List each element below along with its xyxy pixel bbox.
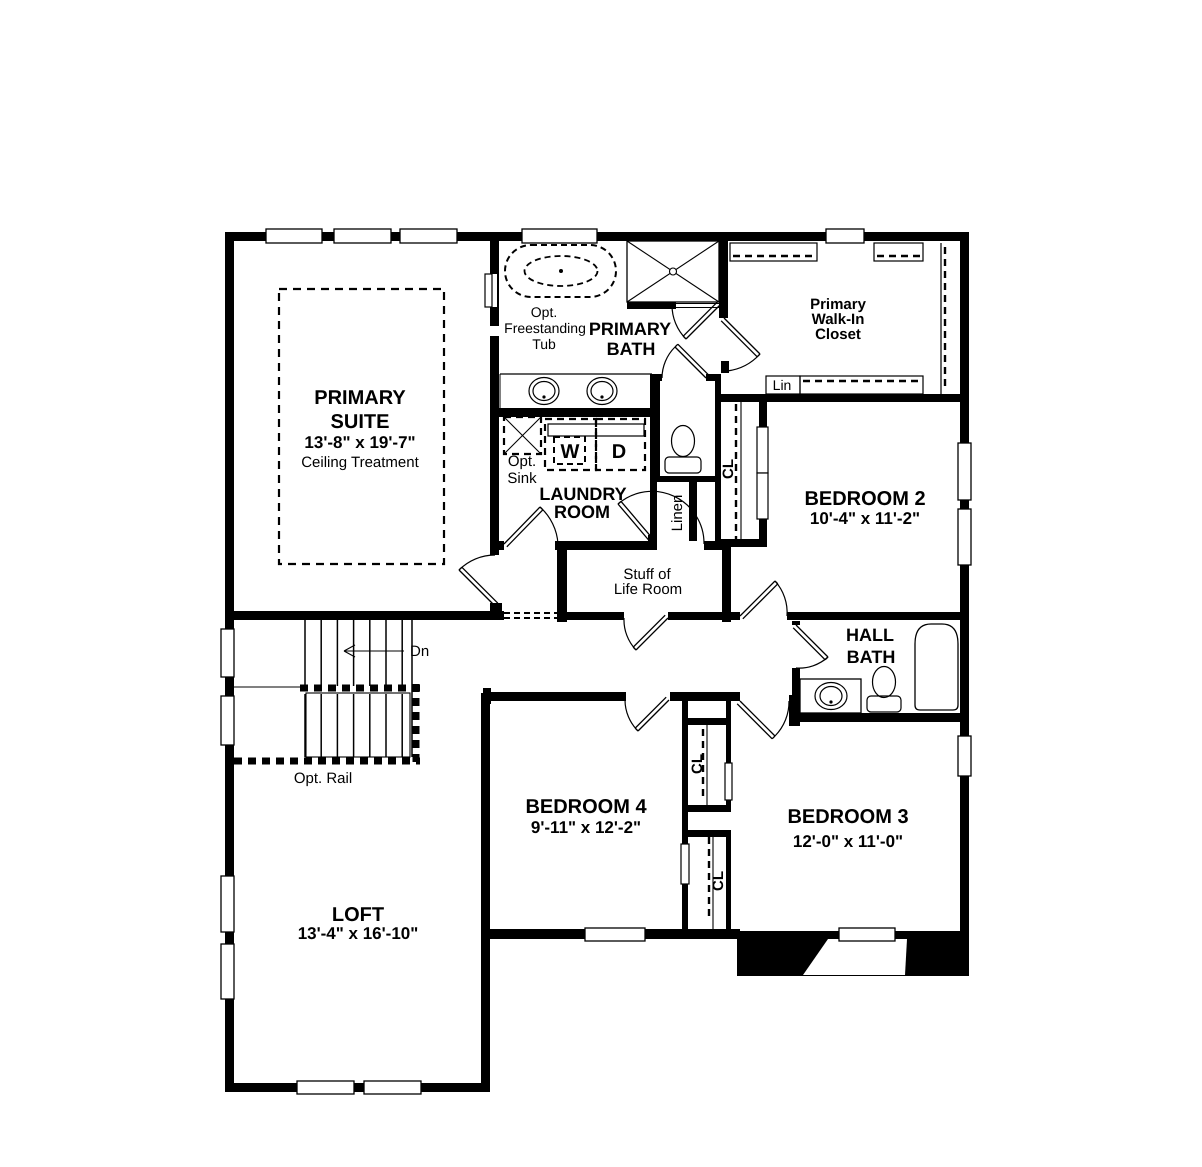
svg-text:13'-4" x 16'-10": 13'-4" x 16'-10" [298, 924, 419, 943]
svg-text:Ceiling Treatment: Ceiling Treatment [301, 454, 419, 471]
svg-text:ROOM: ROOM [554, 502, 610, 522]
svg-text:PRIMARY: PRIMARY [314, 387, 406, 409]
svg-text:Linen: Linen [669, 495, 686, 532]
svg-text:13'-8" x 19'-7": 13'-8" x 19'-7" [304, 433, 415, 452]
svg-text:9'-11" x 12'-2": 9'-11" x 12'-2" [531, 818, 641, 837]
svg-text:BATH: BATH [847, 647, 896, 667]
svg-text:SUITE: SUITE [331, 411, 390, 433]
svg-text:Lin: Lin [773, 377, 792, 393]
svg-text:BATH: BATH [607, 339, 656, 359]
svg-text:W: W [561, 441, 580, 463]
svg-text:CL: CL [710, 871, 727, 891]
svg-text:BEDROOM 2: BEDROOM 2 [804, 488, 925, 510]
svg-text:D: D [612, 441, 626, 463]
svg-text:Life Room: Life Room [614, 581, 682, 598]
svg-text:12'-0" x 11'-0": 12'-0" x 11'-0" [793, 832, 903, 851]
svg-text:Opt.: Opt. [508, 453, 536, 470]
svg-text:Opt. Rail: Opt. Rail [294, 770, 352, 787]
svg-text:Tub: Tub [532, 336, 556, 352]
svg-text:Closet: Closet [815, 326, 861, 343]
svg-text:CL: CL [689, 754, 706, 774]
svg-text:BEDROOM 4: BEDROOM 4 [525, 796, 647, 818]
svg-text:LOFT: LOFT [332, 904, 384, 926]
svg-text:Dn: Dn [410, 643, 429, 660]
svg-text:CL: CL [720, 459, 737, 479]
svg-text:HALL: HALL [846, 625, 894, 645]
svg-text:Opt.: Opt. [531, 304, 557, 320]
svg-text:BEDROOM 3: BEDROOM 3 [787, 806, 908, 828]
svg-text:LAUNDRY: LAUNDRY [539, 484, 626, 504]
svg-text:10'-4" x 11'-2": 10'-4" x 11'-2" [810, 509, 920, 528]
svg-text:Sink: Sink [507, 470, 537, 487]
svg-text:Freestanding: Freestanding [504, 320, 586, 336]
svg-text:PRIMARY: PRIMARY [589, 319, 671, 339]
